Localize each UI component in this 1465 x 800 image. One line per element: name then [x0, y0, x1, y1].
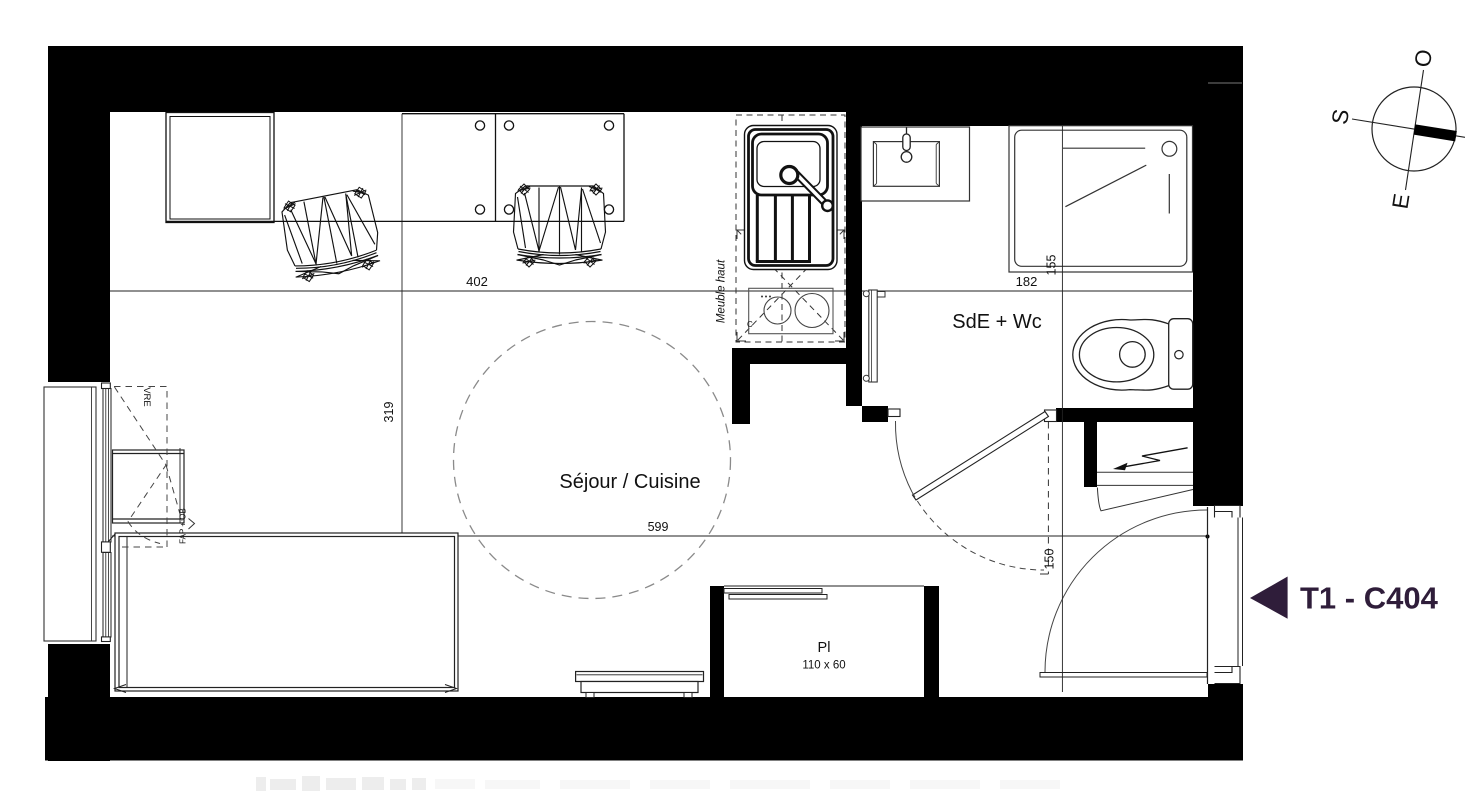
svg-text:Pl: Pl	[818, 640, 831, 656]
svg-text:FAP + OB: FAP + OB	[179, 508, 188, 544]
svg-text:599: 599	[648, 520, 669, 534]
svg-text:SdE + Wc: SdE + Wc	[952, 311, 1041, 333]
svg-text:319: 319	[382, 402, 396, 423]
svg-text:C: C	[747, 320, 753, 329]
svg-text:150: 150	[1042, 549, 1056, 570]
svg-text:110 x 60: 110 x 60	[802, 660, 845, 672]
svg-text:155: 155	[1044, 255, 1058, 276]
svg-text:Meuble haut: Meuble haut	[716, 259, 728, 323]
svg-text:Séjour / Cuisine: Séjour / Cuisine	[559, 471, 700, 493]
svg-text:T1 - C404: T1 - C404	[1300, 581, 1439, 616]
svg-text:402: 402	[466, 274, 488, 289]
svg-text:VRE: VRE	[141, 387, 152, 407]
svg-text:182: 182	[1016, 274, 1038, 289]
